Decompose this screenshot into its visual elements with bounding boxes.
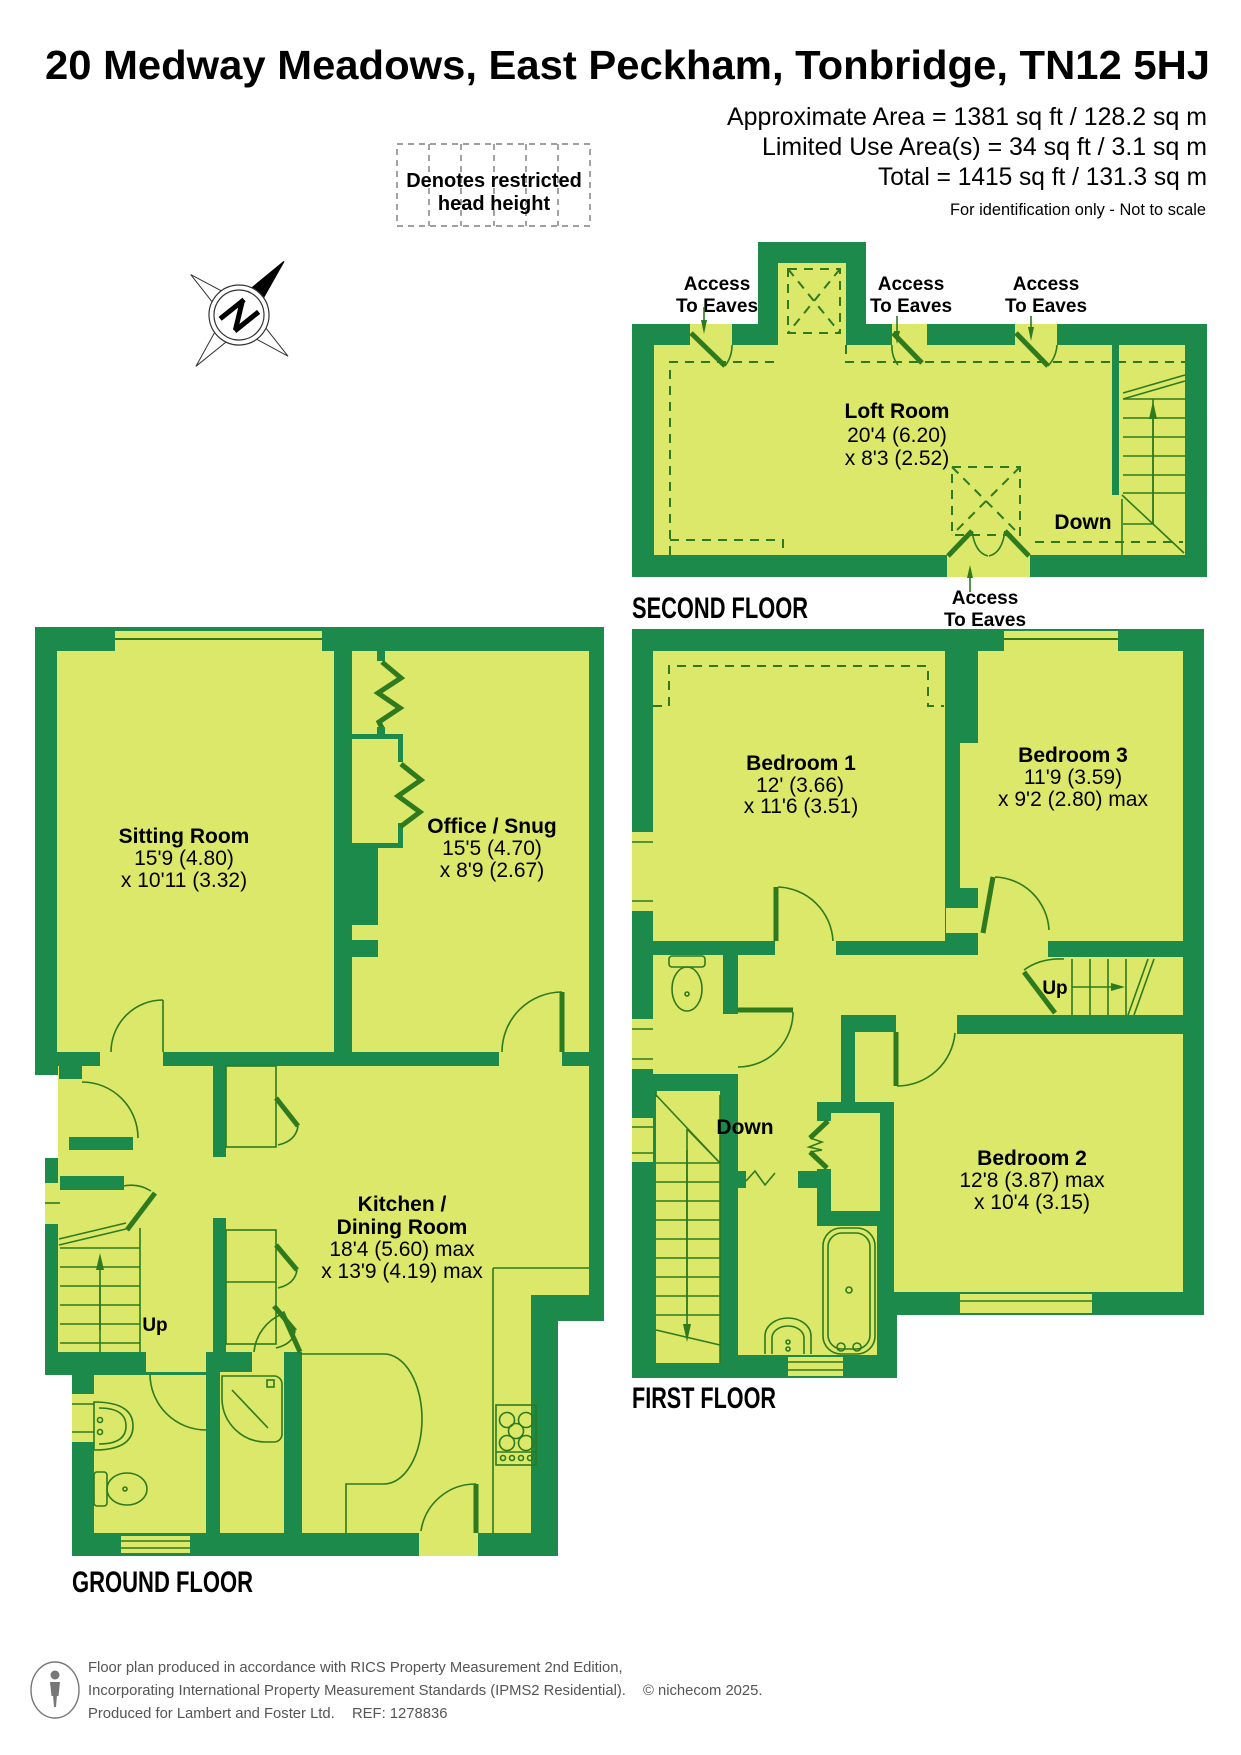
- svg-text:x 11'6 (3.51): x 11'6 (3.51): [744, 795, 859, 818]
- svg-text:Access: Access: [1013, 274, 1080, 295]
- svg-text:12'8 (3.87) max: 12'8 (3.87) max: [959, 1169, 1105, 1192]
- svg-text:15'5 (4.70): 15'5 (4.70): [442, 837, 542, 860]
- svg-text:head height: head height: [438, 193, 551, 215]
- svg-text:Approximate Area = 1381 sq ft: Approximate Area = 1381 sq ft / 128.2 sq…: [727, 103, 1207, 131]
- svg-text:Up: Up: [1042, 978, 1067, 999]
- svg-text:15'9 (4.80): 15'9 (4.80): [134, 847, 234, 870]
- svg-text:Down: Down: [1054, 511, 1111, 534]
- svg-text:x 9'2 (2.80) max: x 9'2 (2.80) max: [998, 788, 1148, 811]
- svg-text:18'4 (5.60) max: 18'4 (5.60) max: [329, 1238, 475, 1261]
- svg-text:For identification only - Not: For identification only - Not to scale: [950, 200, 1206, 219]
- svg-text:Bedroom 1: Bedroom 1: [746, 752, 856, 775]
- svg-text:Office / Snug: Office / Snug: [427, 815, 557, 838]
- svg-text:12' (3.66): 12' (3.66): [756, 774, 844, 797]
- svg-text:Kitchen /: Kitchen /: [358, 1193, 447, 1216]
- svg-text:To Eaves: To Eaves: [944, 610, 1026, 631]
- svg-text:Denotes restricted: Denotes restricted: [406, 170, 582, 192]
- svg-text:Access: Access: [878, 274, 945, 295]
- svg-text:x 8'3 (2.52): x 8'3 (2.52): [845, 447, 949, 470]
- svg-text:REF: 1278836: REF: 1278836: [352, 1706, 447, 1722]
- svg-text:Limited Use Area(s) = 34 sq ft: Limited Use Area(s) = 34 sq ft / 3.1 sq …: [762, 133, 1207, 161]
- svg-text:x 8'9 (2.67): x 8'9 (2.67): [440, 859, 544, 882]
- svg-text:Up: Up: [142, 1315, 167, 1336]
- svg-text:20 Medway Meadows, East Peckha: 20 Medway Meadows, East Peckham, Tonbrid…: [45, 42, 1210, 88]
- svg-text:Sitting Room: Sitting Room: [119, 825, 250, 848]
- svg-text:x 13'9 (4.19) max: x 13'9 (4.19) max: [321, 1260, 483, 1283]
- svg-text:Loft Room: Loft Room: [845, 400, 950, 423]
- svg-text:GROUND FLOOR: GROUND FLOOR: [72, 1566, 253, 1599]
- svg-text:Floor plan produced in accorda: Floor plan produced in accordance with R…: [88, 1660, 623, 1676]
- svg-text:Bedroom 3: Bedroom 3: [1018, 744, 1128, 767]
- svg-text:To Eaves: To Eaves: [676, 296, 758, 317]
- svg-text:Incorporating International Pr: Incorporating International Property Mea…: [88, 1683, 626, 1699]
- svg-text:Total = 1415 sq ft / 131.3 sq: Total = 1415 sq ft / 131.3 sq m: [878, 163, 1207, 191]
- svg-text:Bedroom 2: Bedroom 2: [977, 1147, 1087, 1170]
- svg-text:Access: Access: [952, 588, 1019, 609]
- svg-text:Access: Access: [684, 274, 751, 295]
- svg-text:SECOND FLOOR: SECOND FLOOR: [632, 592, 808, 625]
- svg-text:x 10'4 (3.15): x 10'4 (3.15): [974, 1191, 1090, 1214]
- svg-text:20'4 (6.20): 20'4 (6.20): [847, 424, 947, 447]
- svg-text:To Eaves: To Eaves: [1005, 296, 1087, 317]
- svg-text:© nichecom 2025.: © nichecom 2025.: [643, 1683, 762, 1699]
- svg-text:11'9 (3.59): 11'9 (3.59): [1024, 766, 1122, 789]
- svg-text:FIRST FLOOR: FIRST FLOOR: [632, 1382, 776, 1415]
- svg-text:Produced for Lambert and Foste: Produced for Lambert and Foster Ltd.: [88, 1706, 335, 1722]
- svg-text:x 10'11 (3.32): x 10'11 (3.32): [121, 869, 247, 892]
- svg-text:To Eaves: To Eaves: [870, 296, 952, 317]
- svg-text:Down: Down: [716, 1116, 773, 1139]
- svg-text:Dining Room: Dining Room: [337, 1216, 468, 1239]
